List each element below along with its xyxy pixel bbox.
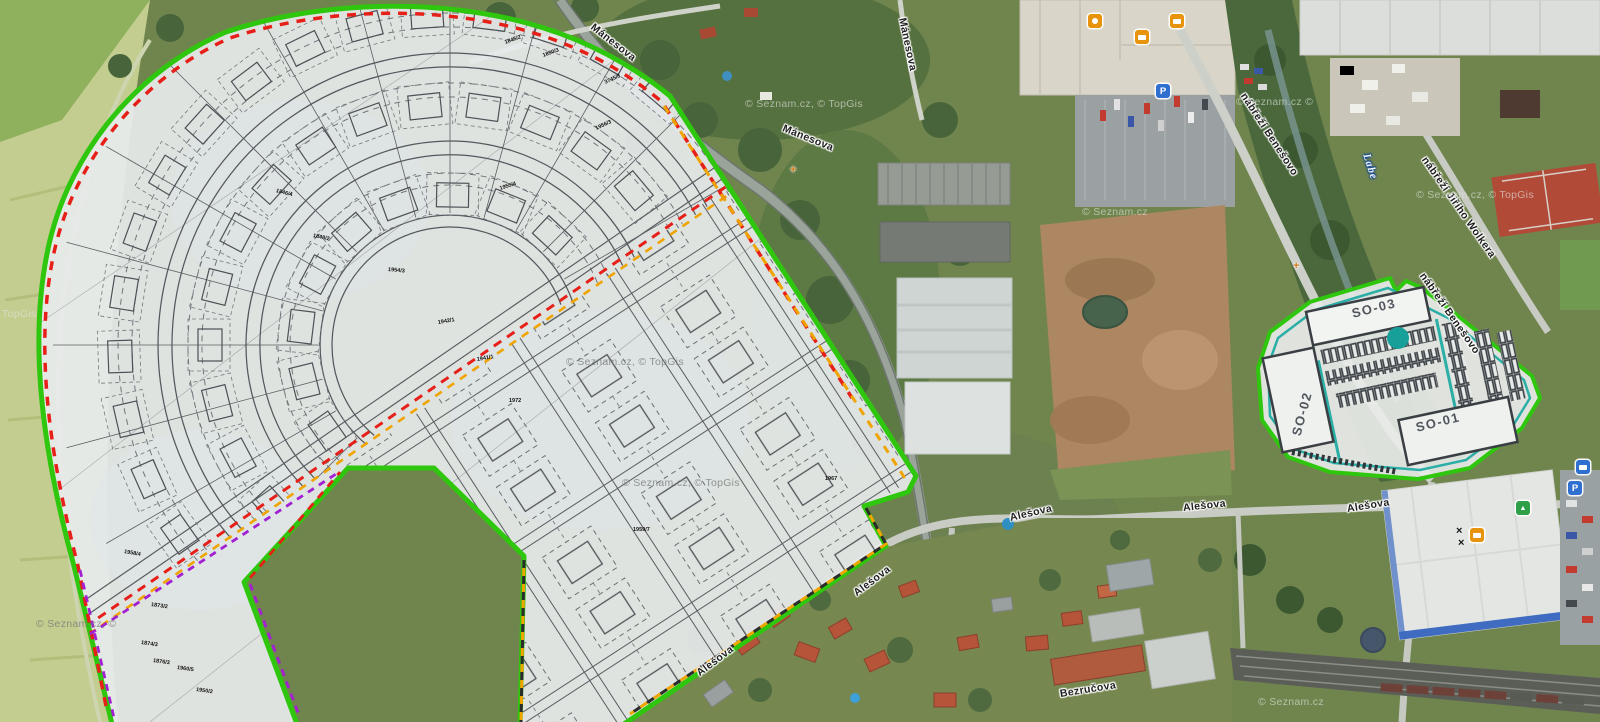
shopping-cart-icon-shape (1473, 533, 1481, 538)
monument-icon[interactable]: + (790, 164, 796, 176)
recycling-icon-glyph: ▲ (1520, 505, 1527, 512)
so-site-pond (1387, 327, 1409, 349)
parking-icon-glyph: P (1160, 86, 1166, 97)
shopping-cart-icon[interactable] (1470, 528, 1484, 542)
lock-icon-shape (1092, 18, 1098, 24)
shopping-basket-icon-shape (1173, 19, 1181, 24)
supermarket-building (1381, 470, 1570, 640)
shopping-basket-icon[interactable] (1170, 14, 1184, 28)
vehicle-icon-shape (1579, 465, 1587, 470)
parking-icon[interactable]: P (1568, 481, 1582, 495)
parking-icon-glyph: P (1572, 483, 1578, 494)
roof-cross-icon: × (1456, 525, 1462, 537)
parking-icon[interactable]: P (1156, 84, 1170, 98)
aerial-basemap (0, 0, 1600, 722)
furniture-icon[interactable] (1135, 30, 1149, 44)
recycling-icon[interactable]: ▲ (1516, 501, 1530, 515)
lock-icon[interactable] (1088, 14, 1102, 28)
vehicle-icon[interactable] (1576, 460, 1590, 474)
map-viewport[interactable]: Mánesova Mánesova Mánesova nábřeží Beneš… (0, 0, 1600, 722)
monument-icon[interactable]: + (1293, 260, 1299, 272)
furniture-icon-shape (1138, 35, 1146, 40)
roof-cross-icon: × (1458, 537, 1464, 549)
